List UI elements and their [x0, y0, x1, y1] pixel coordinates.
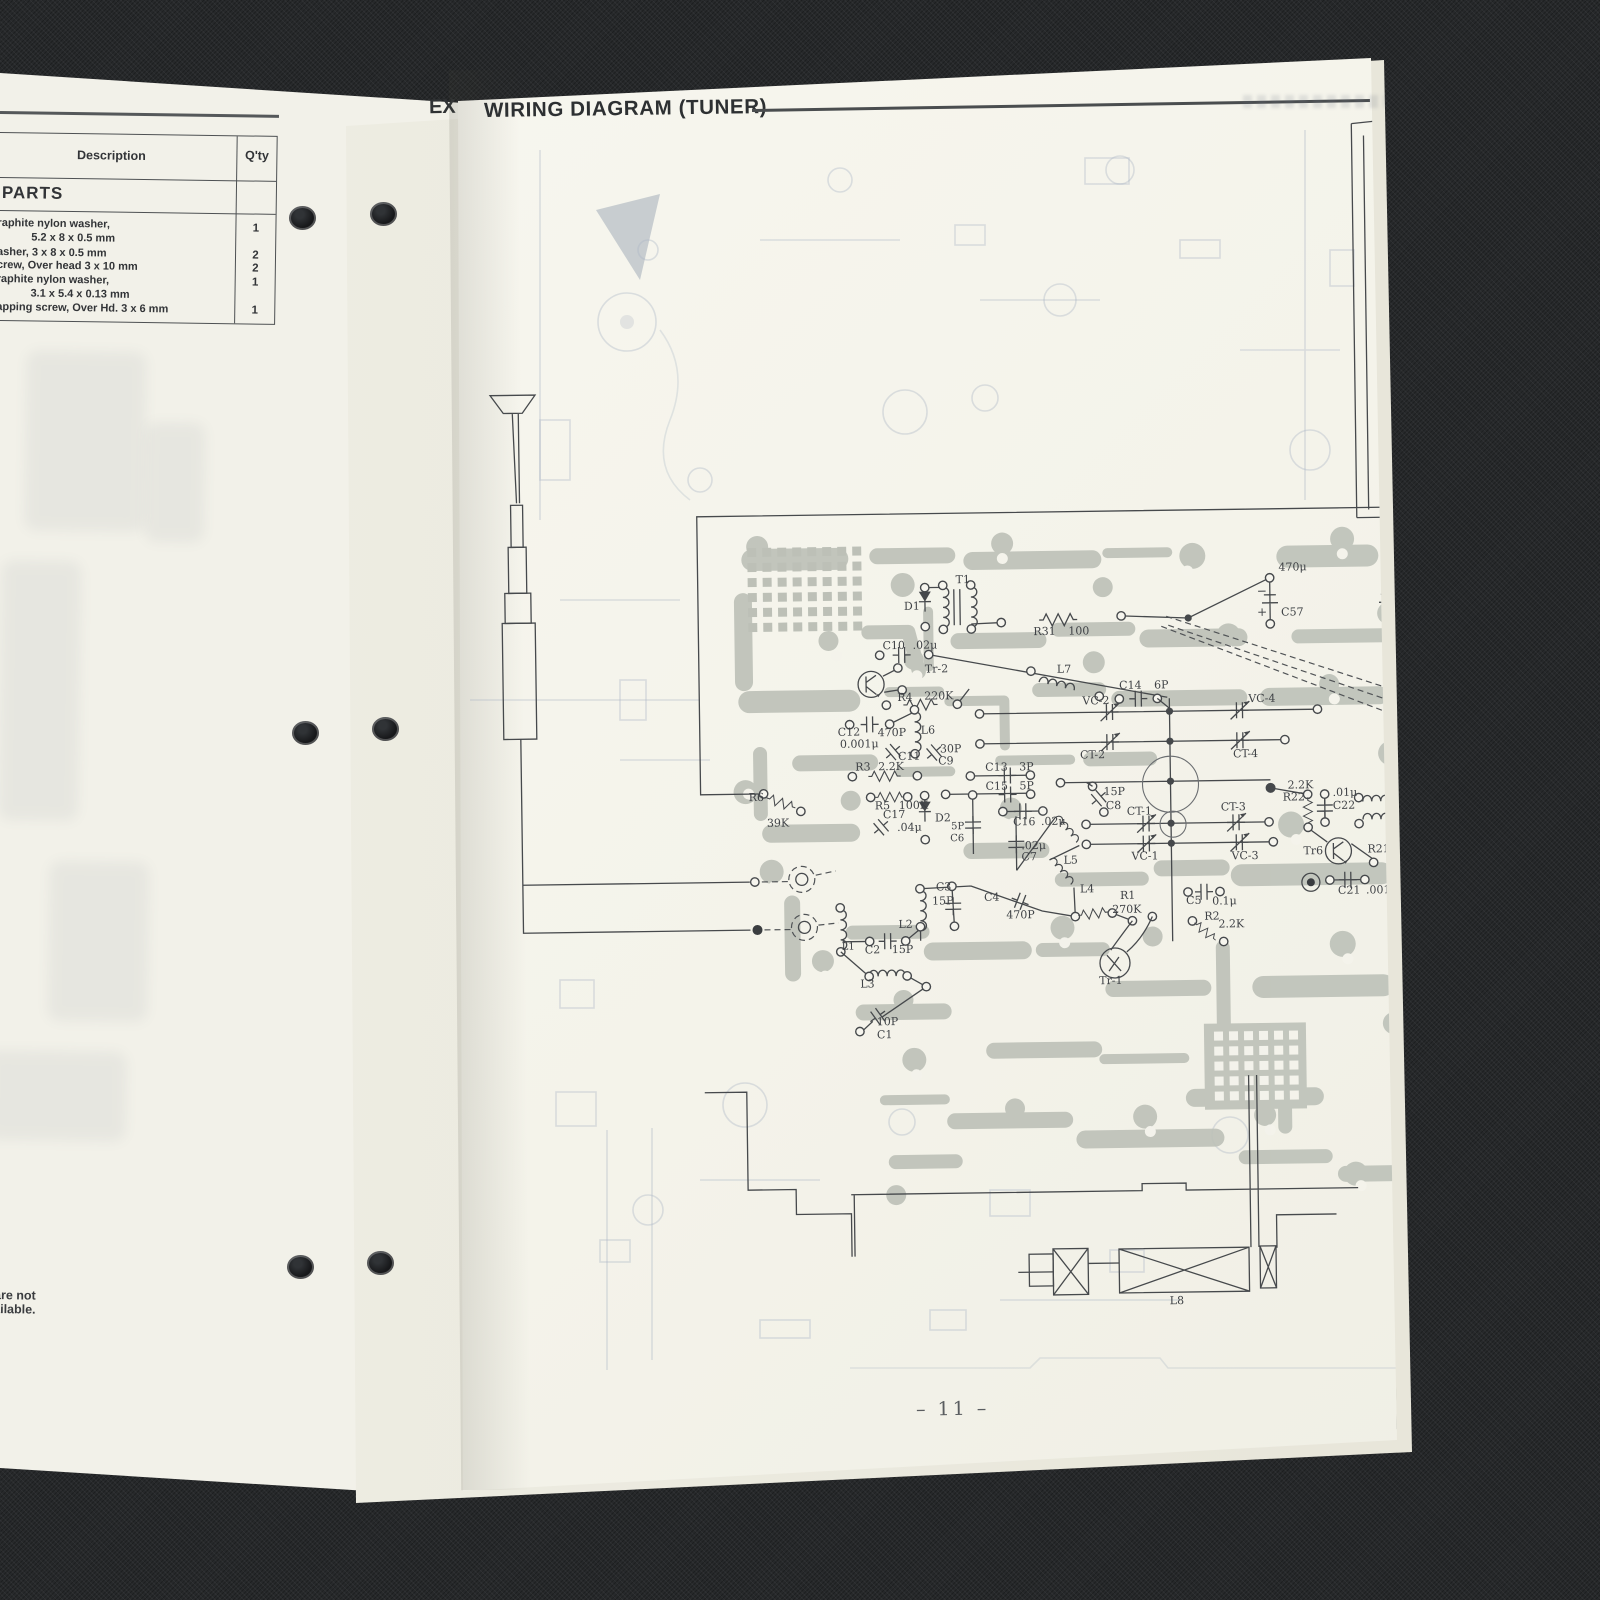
table-qty: 2: [236, 262, 275, 275]
table-qty: 1: [236, 222, 275, 235]
table-row: raphite nylon washer,3.1 x 5.4 x 0.13 mm: [0, 273, 130, 302]
under-page-header-fragment: EX: [429, 96, 456, 119]
table-row: raphite nylon washer,5.2 x 8 x 0.5 mm: [0, 217, 115, 246]
ghost-bleedthrough: [0, 560, 82, 821]
parts-table: Description Q'ty PARTS raphite nylon was…: [0, 132, 278, 325]
punch-hole: [372, 717, 399, 741]
column-header-description: Description: [0, 147, 237, 164]
punch-hole: [292, 721, 319, 745]
page-title: WIRING DIAGRAM (TUNER): [484, 95, 767, 123]
punch-hole: [370, 202, 397, 226]
ghost-bleedthrough: [0, 1050, 127, 1142]
ghost-bleedthrough: [47, 861, 149, 1022]
availability-footnote: ty are not available.: [0, 1288, 36, 1317]
table-header-underline: [0, 177, 276, 182]
punch-hole: [287, 1255, 314, 1279]
punch-hole: [367, 1251, 394, 1275]
ghost-bleedthrough: [24, 350, 147, 532]
punch-hole: [289, 206, 316, 230]
ghost-text-smudge: [1243, 95, 1385, 108]
table-row: crew, Over head 3 x 10 mm: [0, 259, 138, 274]
table-section-title: PARTS: [2, 183, 64, 204]
column-header-qty: Q'ty: [237, 148, 276, 163]
component-label: 1.3M: [1405, 842, 1434, 855]
table-row: apping screw, Over Hd. 3 x 6 mm: [0, 301, 168, 317]
table-qty: 1: [235, 304, 274, 317]
table-qty: 1: [236, 276, 275, 289]
ghost-bleedthrough: [144, 422, 206, 543]
table-qty: 2: [236, 249, 275, 262]
page-number: – 11 –: [916, 1397, 990, 1420]
